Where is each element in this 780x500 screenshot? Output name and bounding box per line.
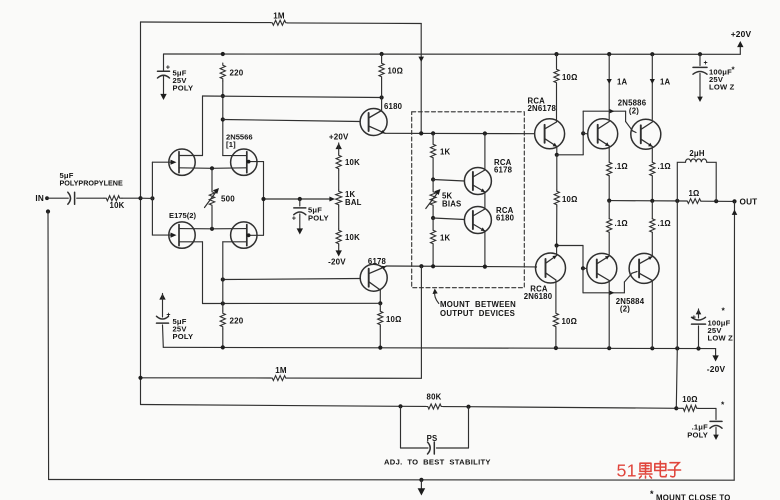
svg-text:1K: 1K: [440, 234, 451, 243]
svg-text:6178: 6178: [494, 166, 513, 175]
svg-text:POLYPROPYLENE: POLYPROPYLENE: [60, 179, 123, 188]
svg-text:220: 220: [230, 69, 244, 78]
svg-text:POLY: POLY: [173, 84, 194, 93]
svg-text:OUT: OUT: [740, 198, 758, 207]
svg-text:BIAS: BIAS: [442, 200, 461, 209]
svg-text:POLY: POLY: [173, 332, 194, 341]
svg-text:10K: 10K: [345, 233, 360, 242]
svg-text:+: +: [292, 216, 296, 223]
svg-text:10Ω: 10Ω: [388, 67, 404, 76]
svg-text:1Ω: 1Ω: [689, 189, 700, 198]
svg-text:10Ω: 10Ω: [562, 317, 578, 326]
svg-text:MOUNT BETWEEN: MOUNT BETWEEN: [440, 300, 516, 309]
svg-text:1M: 1M: [273, 12, 285, 21]
svg-text:+: +: [692, 315, 696, 322]
svg-text:2N6178: 2N6178: [528, 104, 557, 113]
svg-text:+20V: +20V: [731, 29, 752, 39]
svg-text:E175(2): E175(2): [169, 211, 196, 220]
svg-text:6180: 6180: [384, 102, 403, 111]
svg-text:*: *: [650, 489, 654, 499]
svg-text:.1Ω: .1Ω: [615, 219, 628, 228]
svg-text:2N6180: 2N6180: [524, 292, 553, 301]
svg-text:220: 220: [230, 317, 244, 326]
svg-text:*: *: [721, 400, 725, 410]
svg-text:LOW Z: LOW Z: [709, 83, 735, 92]
svg-text:10Ω: 10Ω: [682, 395, 698, 404]
svg-text:10Ω: 10Ω: [562, 195, 578, 204]
svg-text:OUTPUT DEVICES: OUTPUT DEVICES: [440, 309, 515, 318]
svg-text:(2): (2): [629, 107, 639, 116]
svg-text:+: +: [704, 60, 708, 67]
svg-text:+: +: [166, 65, 170, 72]
svg-text:+: +: [166, 312, 170, 319]
svg-text:1M: 1M: [275, 366, 287, 375]
svg-text:500: 500: [221, 195, 235, 204]
svg-text:10K: 10K: [345, 158, 360, 167]
svg-text:51: 51: [617, 461, 637, 481]
svg-text:+20V: +20V: [329, 133, 349, 142]
svg-text:-20V: -20V: [328, 258, 346, 267]
svg-text:ADJ. TO BEST STABILITY: ADJ. TO BEST STABILITY: [384, 458, 491, 467]
svg-text:80K: 80K: [427, 393, 442, 402]
svg-text:.1Ω: .1Ω: [658, 219, 671, 228]
svg-text:PS: PS: [427, 434, 438, 443]
svg-text:*: *: [722, 306, 726, 316]
svg-text:-20V: -20V: [707, 364, 726, 374]
svg-text:.1Ω: .1Ω: [615, 162, 628, 171]
svg-text:1K: 1K: [440, 148, 451, 157]
svg-text:POLY: POLY: [308, 214, 329, 223]
svg-text:2μH: 2μH: [689, 149, 705, 158]
svg-text:10Ω: 10Ω: [386, 315, 402, 324]
svg-text:10Ω: 10Ω: [562, 73, 578, 82]
svg-text:LOW Z: LOW Z: [708, 334, 734, 343]
svg-text:.1Ω: .1Ω: [658, 162, 671, 171]
svg-text:1A: 1A: [617, 78, 628, 87]
svg-text:BAL: BAL: [345, 198, 362, 207]
svg-text:POLY: POLY: [687, 431, 708, 440]
svg-text:(2): (2): [620, 305, 630, 314]
svg-text:IN: IN: [35, 194, 44, 203]
svg-text:[1]: [1]: [226, 140, 236, 149]
svg-text:6180: 6180: [496, 214, 515, 223]
svg-text:MOUNT CLOSE TO: MOUNT CLOSE TO: [656, 494, 731, 500]
svg-text:1A: 1A: [660, 78, 671, 87]
svg-text:6178: 6178: [368, 257, 387, 266]
svg-text:10K: 10K: [110, 201, 125, 210]
